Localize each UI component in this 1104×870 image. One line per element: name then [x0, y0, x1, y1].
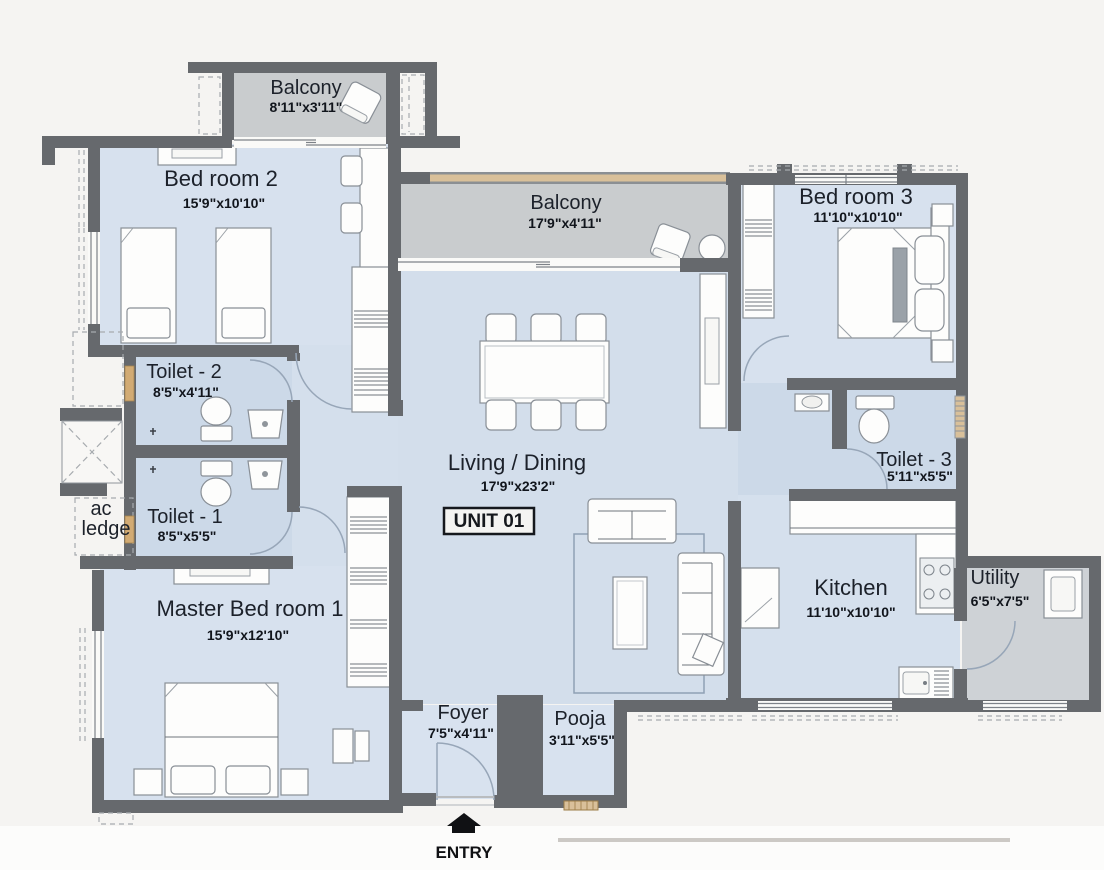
svg-text:Kitchen: Kitchen — [814, 575, 887, 600]
svg-text:Toilet - 1: Toilet - 1 — [147, 506, 223, 528]
svg-text:8'11"x3'11": 8'11"x3'11" — [270, 99, 343, 115]
svg-text:ledge: ledge — [82, 518, 131, 540]
svg-text:3'11"x5'5": 3'11"x5'5" — [549, 732, 615, 748]
svg-text:Foyer: Foyer — [437, 702, 488, 724]
svg-text:Toilet - 2: Toilet - 2 — [146, 361, 222, 383]
svg-text:15'9"x10'10": 15'9"x10'10" — [183, 195, 265, 211]
svg-text:7'5"x4'11": 7'5"x4'11" — [428, 725, 494, 741]
svg-text:Master Bed room 1: Master Bed room 1 — [156, 596, 343, 621]
svg-text:ENTRY: ENTRY — [436, 843, 494, 862]
svg-text:6'5"x7'5": 6'5"x7'5" — [971, 593, 1030, 609]
svg-text:Utility: Utility — [971, 567, 1020, 589]
svg-text:Pooja: Pooja — [554, 708, 606, 730]
svg-text:8'5"x4'11": 8'5"x4'11" — [153, 384, 219, 400]
svg-text:Balcony: Balcony — [530, 192, 601, 214]
svg-text:Living / Dining: Living / Dining — [448, 450, 586, 475]
svg-text:5'11"x5'5": 5'11"x5'5" — [887, 468, 953, 484]
svg-text:11'10"x10'10": 11'10"x10'10" — [813, 209, 902, 225]
svg-text:Bed room 3: Bed room 3 — [799, 184, 913, 209]
svg-text:Bed room 2: Bed room 2 — [164, 166, 278, 191]
svg-text:8'5"x5'5": 8'5"x5'5" — [158, 528, 217, 544]
svg-text:ac: ac — [90, 498, 111, 520]
svg-text:15'9"x12'10": 15'9"x12'10" — [207, 627, 289, 643]
svg-text:UNIT 01: UNIT 01 — [454, 511, 525, 532]
svg-text:17'9"x4'11": 17'9"x4'11" — [528, 215, 602, 231]
svg-text:11'10"x10'10": 11'10"x10'10" — [806, 604, 895, 620]
svg-text:Balcony: Balcony — [270, 77, 341, 99]
svg-text:17'9"x23'2": 17'9"x23'2" — [481, 478, 555, 494]
